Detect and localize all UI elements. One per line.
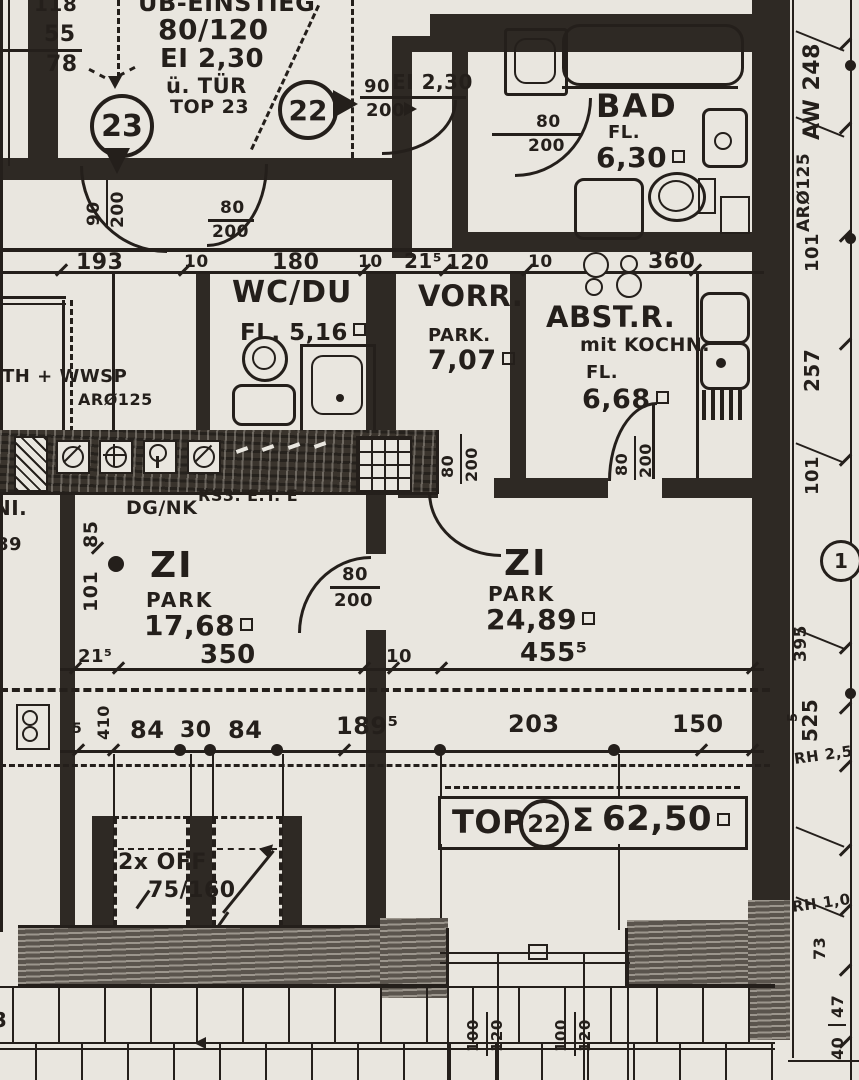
- dim: 84: [130, 718, 164, 742]
- tick: [55, 263, 68, 276]
- dim-dot: [845, 60, 856, 71]
- wall-line: [696, 274, 699, 478]
- ueb-top23-label: TOP 23: [170, 98, 249, 117]
- toilet-wc-body: [232, 384, 296, 426]
- pipe-icon: [105, 446, 127, 468]
- door-width: 80: [440, 455, 456, 478]
- room-sub-abst: mit KOCHN.: [580, 336, 710, 355]
- burner: [583, 252, 609, 278]
- dim: 525: [800, 699, 820, 742]
- leader-line: [796, 826, 845, 847]
- burner: [620, 255, 638, 273]
- pipe-icon: [62, 446, 84, 468]
- dim: 350: [200, 642, 256, 668]
- room-area-zi1: 17,68: [144, 612, 253, 640]
- dashed-line: [117, 0, 120, 78]
- room-name-abst: ABST.R.: [546, 303, 675, 332]
- dashed-line: [445, 786, 740, 789]
- toilet-wc-inner: [252, 346, 276, 370]
- fraction-line: [330, 586, 380, 589]
- pipe-circle: [22, 726, 38, 742]
- arrow-line: [200, 1042, 290, 1044]
- dim: 101: [804, 233, 822, 272]
- window-dashed: [113, 816, 189, 819]
- ext-line: [113, 754, 115, 816]
- tile-row: [0, 986, 775, 1042]
- wall-pier: [282, 816, 302, 932]
- dim: 455⁵: [520, 640, 588, 666]
- ext-line: [282, 754, 284, 816]
- washing-machine-drum: [514, 38, 556, 84]
- room-area-bad: 6,30: [596, 144, 685, 172]
- dim: 257: [802, 349, 822, 392]
- wall: [366, 492, 386, 554]
- radiator-bar: [711, 390, 715, 420]
- room-name-wcdu: WC/DU: [232, 278, 352, 308]
- dim: AW 248: [802, 43, 824, 140]
- edge-line: [0, 296, 66, 299]
- dgnk-label: DG/NK: [126, 499, 197, 518]
- dim: 84: [228, 718, 262, 742]
- cutoff-label: NI.: [0, 498, 27, 518]
- top22-area: 62,50: [602, 802, 730, 836]
- radiator-bar: [738, 390, 742, 420]
- grate-cell: [356, 436, 412, 494]
- entry-ei: EI 2,30: [392, 72, 473, 92]
- ext-line: [440, 754, 442, 798]
- dim: 203: [508, 712, 560, 736]
- door-width: 90: [86, 201, 103, 226]
- wall: [366, 630, 386, 690]
- wall: [494, 478, 608, 498]
- off-label: 2x OFF: [118, 852, 207, 874]
- room-name-vorr: VORR.: [418, 282, 523, 311]
- bathtub: [562, 24, 744, 86]
- pipe-icon: [193, 446, 215, 468]
- dim: 47: [830, 995, 846, 1018]
- door-arc: [428, 492, 501, 557]
- room-floor-vorr: PARK.: [428, 327, 491, 345]
- dim: 189⁵: [336, 714, 399, 738]
- wall-line: [0, 248, 452, 252]
- dim-line: [850, 0, 852, 1080]
- toilet-tank: [698, 178, 716, 214]
- wall: [196, 274, 210, 434]
- threshold-line: [440, 962, 630, 964]
- dim: ARØ125: [796, 153, 813, 232]
- dim-dot: [174, 744, 186, 756]
- dim: 21⁵: [404, 251, 442, 271]
- dim-line: [60, 668, 764, 671]
- shower-drain: [336, 394, 344, 402]
- wall: [0, 158, 408, 180]
- door-width: 80: [220, 200, 245, 217]
- door-width: 80: [536, 114, 561, 131]
- wall-pier: [92, 816, 114, 932]
- top22-number: 22: [519, 799, 569, 849]
- sigma-symbol: Σ: [572, 804, 594, 836]
- radiator-bar: [729, 390, 733, 420]
- dim-118: 118: [34, 0, 77, 14]
- door-height: 200: [638, 443, 654, 478]
- ext-line: [190, 754, 192, 816]
- top22-label: TOP: [452, 806, 526, 838]
- shower-tray: [574, 178, 644, 240]
- ext-line: [212, 754, 214, 816]
- shower-inner: [311, 355, 363, 415]
- arrow-ne-icon: [259, 839, 278, 858]
- axis-marker-1: 1: [820, 540, 859, 582]
- dim: 73: [812, 937, 828, 960]
- window-dashed: [113, 816, 117, 928]
- wall: [662, 478, 752, 498]
- toilet-bad-inner: [658, 180, 694, 212]
- arrow-dash: [88, 68, 105, 79]
- tile-line: [788, 1060, 859, 1062]
- threshold-detail: [528, 944, 548, 960]
- dim-78: 78: [46, 54, 78, 76]
- door-width: 80: [614, 453, 630, 476]
- floor-plan: NI. 89 3 118 55 78 ÜB-EINSTIEG 80/120 EI…: [0, 0, 859, 1080]
- edge-line: [8, 0, 10, 166]
- dim: 5: [787, 712, 800, 722]
- window-dashed: [212, 816, 216, 928]
- fixture-line: [562, 86, 738, 89]
- dim: 410: [96, 705, 112, 740]
- door-height: 200: [110, 191, 127, 228]
- room-fl-bad: FL.: [608, 124, 640, 142]
- dim: 101: [804, 456, 822, 495]
- wall: [60, 492, 75, 932]
- rs3-label: RS3. E.T. E: [198, 488, 298, 504]
- arrow-right-icon: [333, 90, 358, 118]
- fraction-line: [360, 96, 466, 99]
- door-arc: [382, 100, 457, 155]
- radiator-bar: [720, 390, 724, 420]
- dim-line: [60, 750, 764, 753]
- dashed-line: [0, 764, 770, 767]
- room-name-zi2: ZI: [504, 546, 548, 582]
- dim: 180: [272, 252, 319, 274]
- dashed-line: [351, 0, 354, 158]
- th-wwsp-label: TH + WWSP: [2, 368, 127, 386]
- edge-line: [0, 303, 66, 305]
- door-height: 200: [528, 138, 565, 155]
- tile-line: [0, 1048, 775, 1050]
- dim: 150: [672, 712, 724, 736]
- ueb-tuer-label: ü. TÜR: [166, 76, 247, 97]
- room-name-zi1: ZI: [150, 548, 194, 584]
- burner: [616, 272, 642, 298]
- dim: 5: [72, 722, 82, 736]
- radiator-bar: [702, 390, 706, 420]
- room-area-zi2: 24,89: [486, 606, 595, 634]
- vent-fixture: [720, 196, 750, 234]
- door-height: 200: [212, 224, 249, 241]
- dim: 395: [793, 625, 810, 662]
- cutoff-label: 89: [0, 536, 22, 554]
- pipe-cross: [103, 454, 125, 456]
- entry-width: 90: [364, 78, 390, 96]
- ueb-size-label: 80/120: [158, 16, 269, 44]
- dim: 120: [446, 252, 489, 272]
- dim: 101: [82, 571, 101, 612]
- dim-55: 55: [44, 24, 76, 46]
- dim-dot: [845, 688, 856, 699]
- pipe-stem: [156, 456, 159, 468]
- kitchen-unit: [700, 292, 750, 344]
- dim: 21⁵: [78, 648, 112, 666]
- ar125-label: ARØ125: [78, 392, 153, 408]
- door-width: 80: [342, 566, 368, 584]
- shaft-cell: [14, 436, 48, 492]
- dim: 40: [830, 1037, 846, 1060]
- dim-dot: [204, 744, 216, 756]
- dim: 360: [648, 251, 695, 273]
- room-fl-abst: FL.: [586, 364, 618, 382]
- dim: 30: [180, 720, 212, 742]
- burner: [585, 278, 603, 296]
- arrow-left-icon: [194, 1037, 206, 1049]
- edge-line: [0, 0, 3, 172]
- junction-dot: [108, 556, 124, 572]
- window-dashed: [279, 816, 283, 928]
- room-name-bad: BAD: [596, 90, 678, 122]
- dashed-line: [0, 688, 770, 692]
- ext-line: [618, 844, 620, 930]
- ext-line: [618, 754, 620, 798]
- door-height: 200: [464, 447, 480, 482]
- window-dashed: [212, 816, 282, 819]
- ueb-ei-label: EI 2,30: [160, 46, 264, 72]
- wall: [412, 36, 432, 52]
- fraction-line: [828, 1024, 846, 1026]
- room-floor-zi2: PARK: [488, 584, 555, 604]
- wall: [752, 0, 790, 1040]
- washbasin-drain: [714, 132, 732, 150]
- sink-drain: [716, 358, 726, 368]
- dim: 193: [76, 252, 123, 274]
- top-marker-22: 22: [278, 80, 338, 140]
- pipe-circle: [22, 710, 38, 726]
- off-size-label: 75/160: [148, 880, 236, 902]
- door-height: 200: [334, 592, 373, 610]
- arrow-down-icon: [108, 76, 122, 89]
- room-area-vorr: 7,07: [428, 347, 515, 374]
- dim: 10: [358, 254, 383, 271]
- room-floor-zi1: PARK: [146, 590, 213, 610]
